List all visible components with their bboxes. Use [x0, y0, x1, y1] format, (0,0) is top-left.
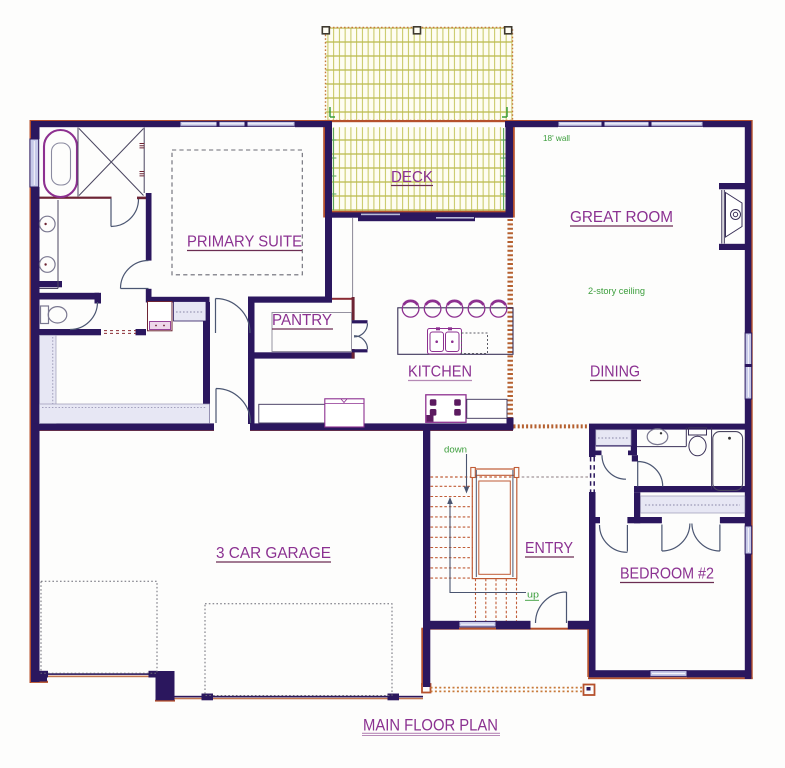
svg-text:ENTRY: ENTRY [525, 540, 573, 557]
svg-text:GREAT ROOM: GREAT ROOM [570, 209, 673, 226]
svg-text:18' wall: 18' wall [543, 133, 570, 143]
svg-text:down: down [444, 445, 467, 455]
svg-text:2-story ceiling: 2-story ceiling [588, 286, 645, 296]
svg-text:BEDROOM #2: BEDROOM #2 [620, 566, 714, 583]
svg-text:MAIN FLOOR PLAN: MAIN FLOOR PLAN [363, 717, 498, 735]
svg-text:KITCHEN: KITCHEN [408, 364, 472, 381]
svg-text:up: up [527, 590, 539, 600]
svg-text:DINING: DINING [590, 364, 640, 381]
svg-text:DECK: DECK [391, 169, 434, 186]
svg-text:PANTRY: PANTRY [272, 312, 332, 329]
svg-text:3 CAR GARAGE: 3 CAR GARAGE [216, 545, 331, 562]
svg-text:PRIMARY SUITE: PRIMARY SUITE [187, 234, 302, 251]
